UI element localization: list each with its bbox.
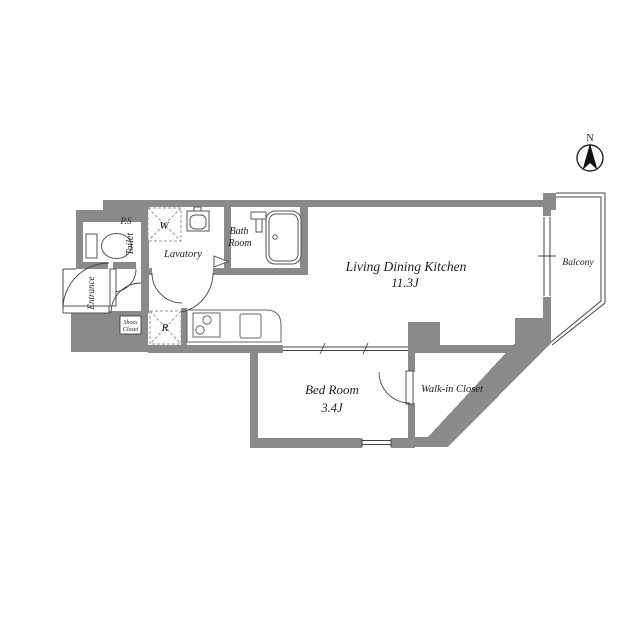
compass-north-label: N <box>586 133 593 144</box>
wall <box>250 352 258 448</box>
wall <box>141 200 149 313</box>
bathtub <box>251 211 301 264</box>
pipe-space-label: P.S <box>119 216 132 226</box>
washbasin <box>187 207 209 231</box>
bedroom-label: Bed Room <box>305 382 359 397</box>
wall <box>408 403 415 437</box>
bedroom-south-window <box>362 438 391 448</box>
wall <box>408 322 440 353</box>
compass-icon: N <box>577 133 603 171</box>
ldk-size-label: 11.3J <box>391 275 420 290</box>
wall <box>440 345 516 353</box>
wall <box>543 193 556 210</box>
shoes-closet-label-line2: Closet <box>123 327 139 333</box>
bath-room-label-line2: Room <box>227 238 251 249</box>
ldk-label: Living Dining Kitchen <box>345 259 467 274</box>
toilet-label: Toilet <box>125 233 136 256</box>
wall <box>181 308 187 345</box>
floor-plan-drawing: N Living Dining Kitchen 11.3J Bed Room 3… <box>0 0 640 640</box>
floor-plan-page: N Living Dining Kitchen 11.3J Bed Room 3… <box>0 0 640 640</box>
bedroom-size-label: 3.4J <box>320 401 344 415</box>
bath-room-label-line1: Bath <box>230 226 249 237</box>
entrance-label: Entrance <box>86 277 96 311</box>
north-arrow-icon <box>583 144 598 171</box>
balcony-outline <box>551 193 605 345</box>
wall <box>408 353 415 372</box>
refrigerator-label: R <box>161 322 169 334</box>
ldk-door-arc <box>173 273 213 313</box>
wall <box>250 438 362 448</box>
lavatory-label: Lavatory <box>163 249 202 260</box>
kitchen-sink <box>240 314 261 338</box>
wall-angled <box>410 343 551 447</box>
kitchen-counter <box>187 310 281 342</box>
closet-door-arc <box>379 372 410 403</box>
balcony-inner-edge <box>551 197 601 342</box>
washer-label: W <box>159 220 169 232</box>
wall <box>141 268 152 275</box>
hall-door-leaf <box>110 269 116 306</box>
ldk-bedroom-partition <box>283 343 408 354</box>
wall <box>76 210 83 269</box>
wall <box>148 345 283 353</box>
closet-door-leaf <box>406 371 413 404</box>
wall <box>113 262 136 269</box>
wall <box>515 318 551 343</box>
alcove-edge <box>63 269 76 310</box>
balcony-label: Balcony <box>562 258 594 268</box>
walk-in-closet-label: Walk-in Closet <box>421 384 484 395</box>
walls <box>71 193 556 448</box>
ldk-east-window <box>538 216 556 297</box>
balcony-outer-edge <box>552 193 605 345</box>
lavatory-door-arc <box>152 273 182 303</box>
wall <box>108 200 556 207</box>
wall <box>213 268 308 275</box>
shoes-closet-label-line1: Shoes <box>124 320 139 326</box>
